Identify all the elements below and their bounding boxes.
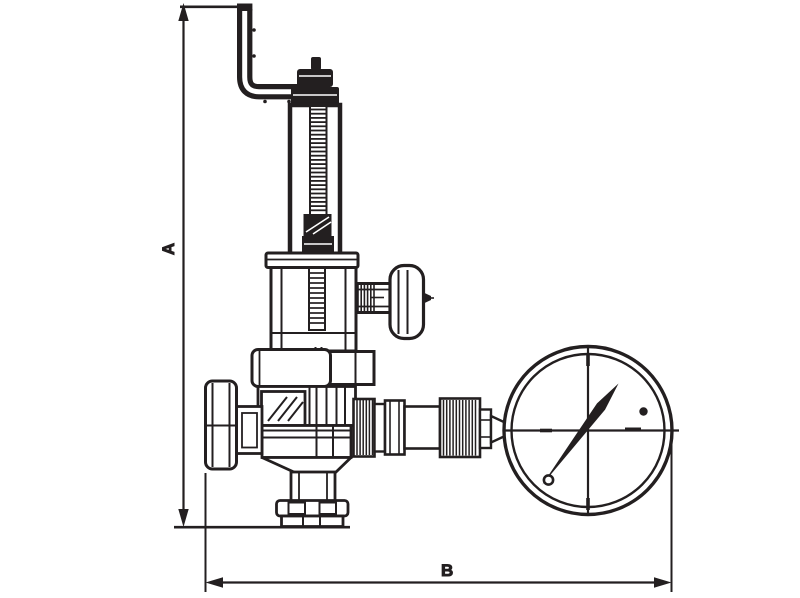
svg-text:B: B [441,561,453,580]
svg-text:A: A [159,243,178,255]
